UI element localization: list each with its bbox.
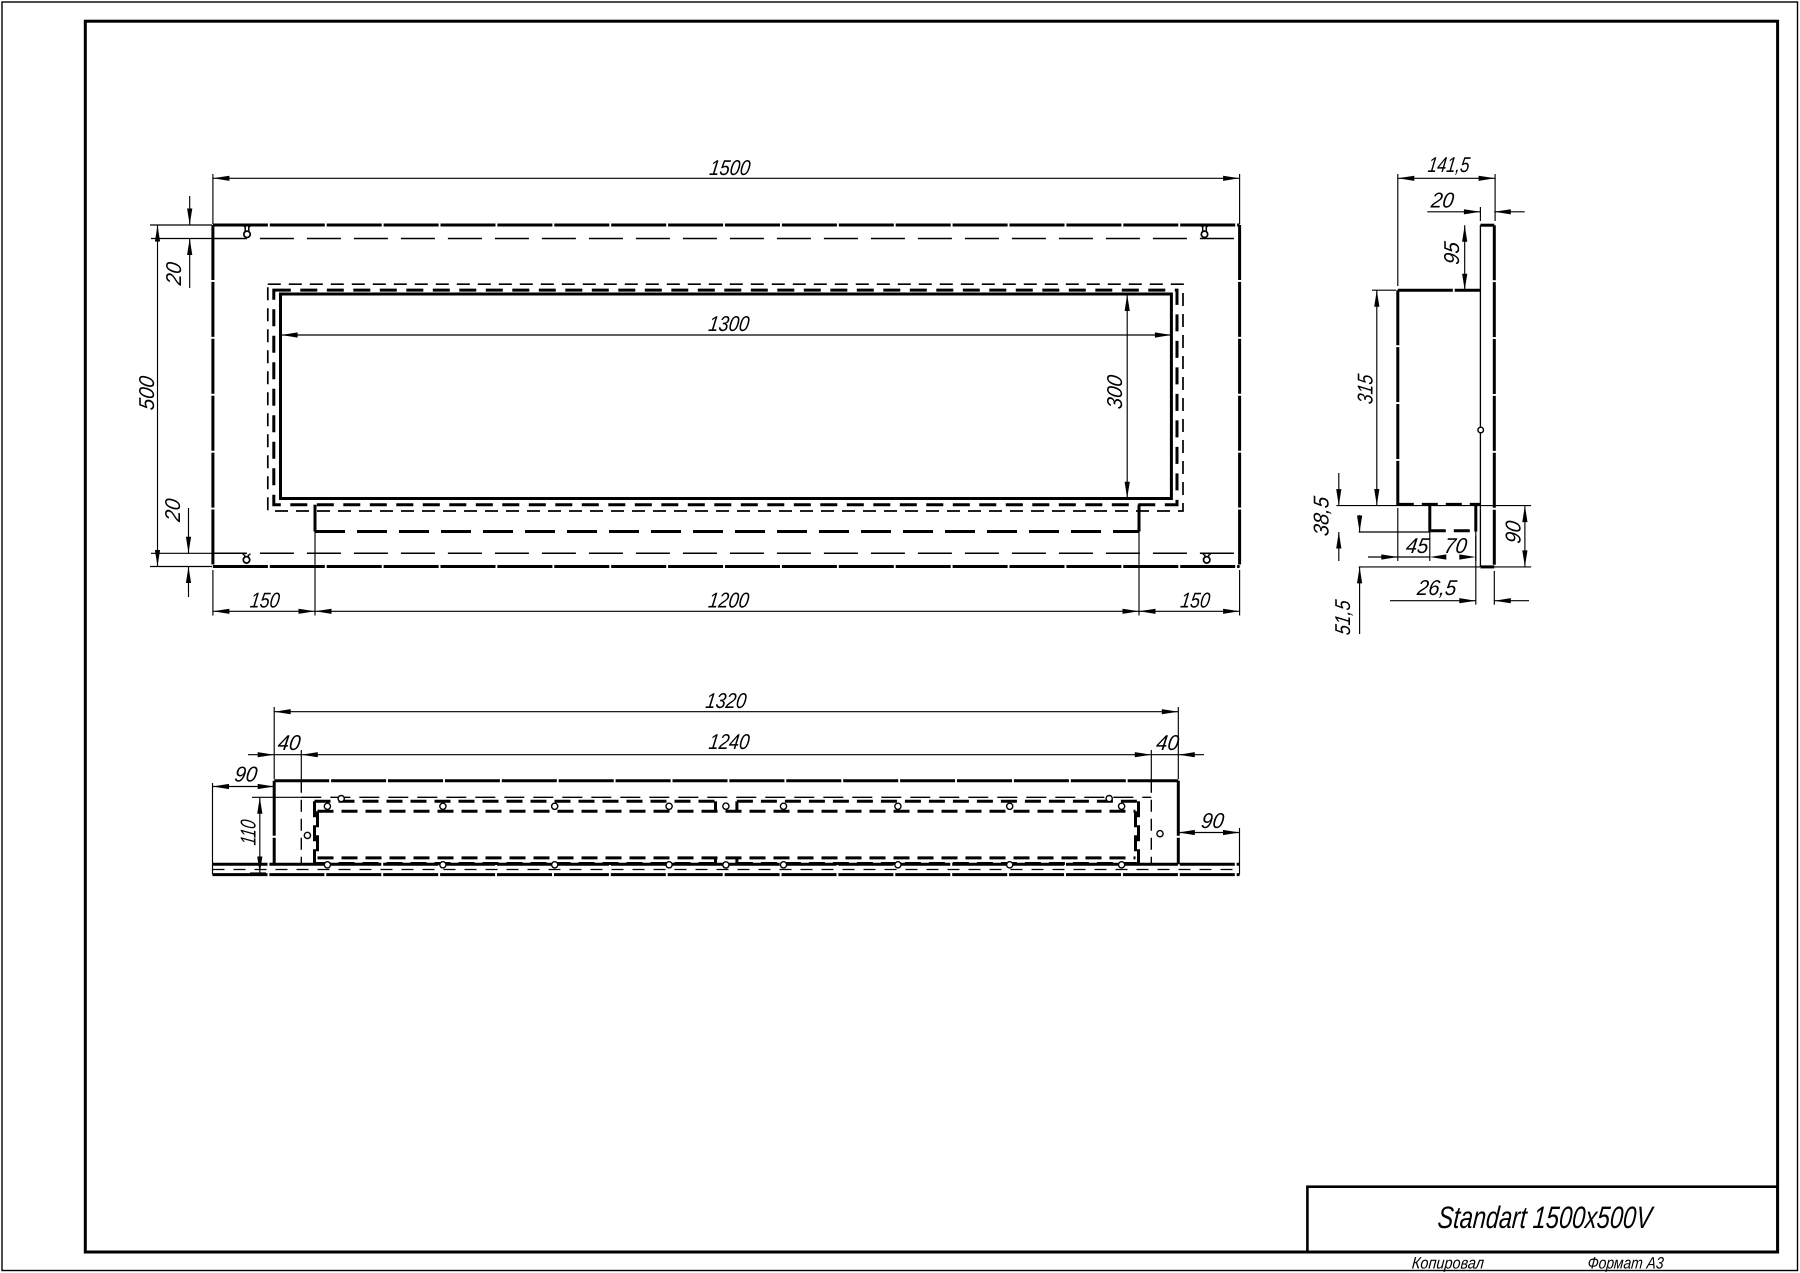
svg-text:150: 150 <box>249 587 282 612</box>
svg-text:40: 40 <box>276 730 302 755</box>
svg-text:90: 90 <box>1501 519 1526 545</box>
svg-text:1200: 1200 <box>707 587 751 612</box>
svg-text:20: 20 <box>1429 187 1456 212</box>
svg-text:Формат А3: Формат А3 <box>1587 1254 1665 1273</box>
svg-text:20: 20 <box>161 261 186 288</box>
svg-text:1300: 1300 <box>707 311 751 336</box>
svg-text:90: 90 <box>1200 808 1226 833</box>
svg-text:110: 110 <box>236 818 261 846</box>
svg-text:95: 95 <box>1439 239 1464 266</box>
svg-text:141,5: 141,5 <box>1427 152 1473 177</box>
svg-text:1500: 1500 <box>708 155 752 180</box>
svg-text:40: 40 <box>1155 730 1181 755</box>
svg-text:20: 20 <box>160 497 185 524</box>
svg-text:315: 315 <box>1352 372 1377 405</box>
svg-text:1240: 1240 <box>707 729 751 754</box>
svg-text:300: 300 <box>1102 373 1127 410</box>
svg-text:45: 45 <box>1405 533 1432 558</box>
svg-text:1320: 1320 <box>704 688 748 713</box>
svg-text:51,5: 51,5 <box>1330 597 1355 636</box>
svg-text:90: 90 <box>233 762 259 787</box>
svg-text:Standart 1500x500V: Standart 1500x500V <box>1436 1200 1656 1235</box>
svg-text:150: 150 <box>1179 587 1212 612</box>
svg-text:Копировал: Копировал <box>1411 1254 1485 1273</box>
svg-text:38,5: 38,5 <box>1309 494 1334 538</box>
svg-text:70: 70 <box>1443 533 1469 558</box>
svg-text:500: 500 <box>134 374 159 411</box>
svg-text:26,5: 26,5 <box>1415 575 1459 600</box>
